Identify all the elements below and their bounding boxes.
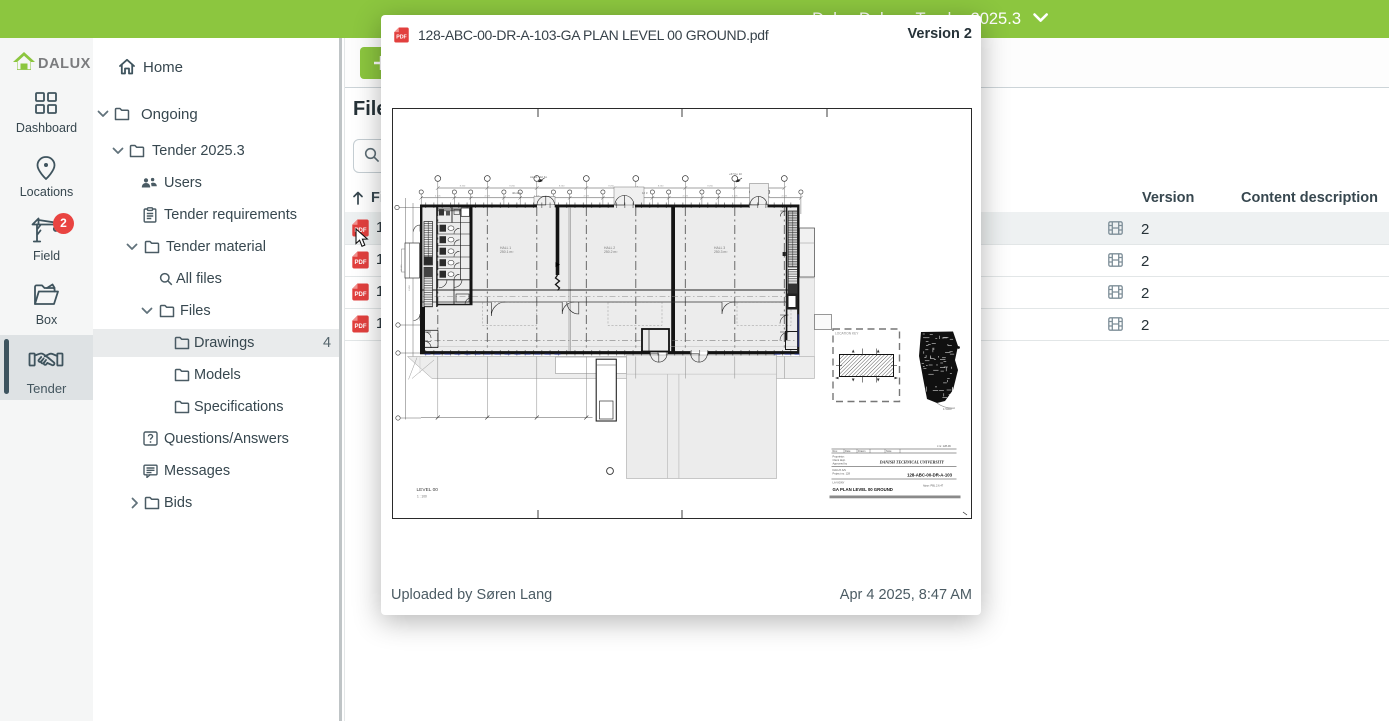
svg-text:250.2 m²: 250.2 m² [604, 250, 618, 254]
svg-text:LEVEL 00: LEVEL 00 [417, 487, 439, 493]
svg-text:Date: Date [845, 449, 851, 453]
svg-text:128-ABC-00-DR-A-103: 128-ABC-00-DR-A-103 [907, 473, 953, 478]
svg-text:Approved by: Approved by [833, 462, 848, 466]
svg-text:12 3: 12 3 [642, 191, 648, 195]
svg-text:HALL 3: HALL 3 [714, 246, 725, 250]
svg-text:8 250: 8 250 [460, 186, 466, 188]
svg-text:8 250: 8 250 [608, 186, 614, 188]
svg-text:Ajour: PBL 2.6.47: Ajour: PBL 2.6.47 [923, 484, 944, 488]
svg-text:4 125: 4 125 [683, 195, 689, 197]
svg-text:PDF: PDF [396, 35, 407, 41]
svg-text:Note: Note [886, 449, 892, 453]
svg-text:A2-01 +42 Ko: A2-01 +42 Ko [530, 175, 548, 179]
svg-text:250.3 m²: 250.3 m² [714, 250, 728, 254]
svg-text:8 250: 8 250 [658, 186, 664, 188]
svg-text:4 125: 4 125 [435, 195, 441, 197]
svg-text:LA VIGNY: LA VIGNY [833, 481, 845, 485]
svg-text:HALL 2: HALL 2 [604, 246, 615, 250]
svg-text:8 250: 8 250 [509, 186, 515, 188]
svg-text:DALUX A/S: DALUX A/S [833, 468, 847, 472]
svg-text:Drawn: Drawn [858, 449, 866, 453]
svg-text:250.1 m²: 250.1 m² [500, 250, 514, 254]
svg-text:8 250: 8 250 [707, 186, 713, 188]
svg-text:Project no. 128: Project no. 128 [833, 472, 851, 476]
svg-text:8 250: 8 250 [559, 186, 565, 188]
svg-text:DANISH TECHNICAL UNIVERSITY: DANISH TECHNICAL UNIVERSITY [879, 460, 945, 465]
svg-text:4 125: 4 125 [782, 195, 788, 197]
svg-text:Rev.: Rev. [833, 449, 838, 453]
svg-text:PDF: PDF [355, 292, 367, 298]
svg-text:4 125: 4 125 [584, 195, 590, 197]
svg-text:PDF: PDF [355, 260, 367, 266]
svg-text:1 : 100: 1 : 100 [417, 495, 427, 499]
svg-text:LOCATION KEY: LOCATION KEY [835, 332, 859, 336]
svg-text:GA PLAN LEVEL 00 GROUND: GA PLAN LEVEL 00 GROUND [833, 487, 893, 492]
svg-text:+67 Ko 10: +67 Ko 10 [729, 172, 742, 176]
svg-text:Proprietor:: Proprietor: [833, 455, 845, 459]
svg-text:Client dept.: Client dept. [833, 458, 846, 462]
svg-text:4 125: 4 125 [485, 195, 491, 197]
svg-text:DALUX: DALUX [38, 56, 91, 72]
svg-text:J.nr. 128-09: J.nr. 128-09 [937, 444, 951, 448]
svg-text:4 125: 4 125 [732, 195, 738, 197]
svg-text:6 450: 6 450 [409, 284, 411, 290]
svg-text:PDF: PDF [355, 324, 367, 330]
svg-text:40x40s: 40x40s [512, 191, 522, 195]
svg-text:1:5000: 1:5000 [943, 407, 952, 411]
svg-text:HALL 1: HALL 1 [500, 246, 511, 250]
